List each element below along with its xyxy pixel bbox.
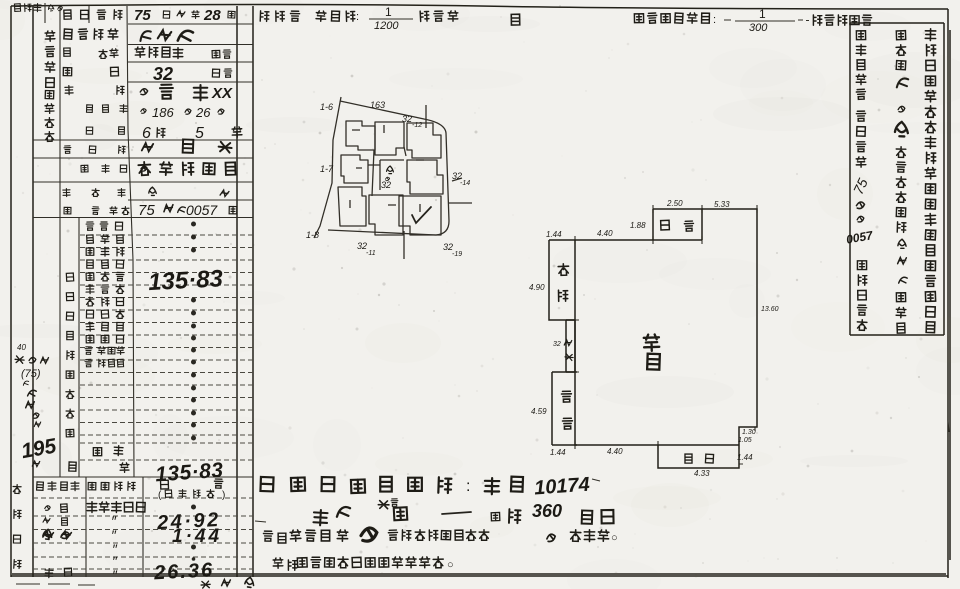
svg-text:-14: -14	[460, 180, 470, 187]
svg-text:10174: 10174	[533, 474, 590, 500]
svg-text:40: 40	[17, 343, 26, 352]
svg-text:1-6: 1-6	[320, 102, 333, 112]
svg-text:135·83: 135·83	[148, 265, 225, 296]
svg-text:1.44: 1.44	[546, 230, 562, 239]
svg-text:-11: -11	[366, 250, 376, 257]
svg-text:1-8: 1-8	[306, 230, 319, 240]
svg-text:1.05: 1.05	[738, 437, 752, 444]
svg-text:4.59: 4.59	[531, 407, 547, 416]
svg-text:2.50: 2.50	[666, 199, 683, 208]
svg-text:32: 32	[153, 64, 173, 84]
svg-text:): )	[222, 490, 225, 501]
svg-text:4.40: 4.40	[597, 229, 613, 238]
svg-text::: :	[713, 14, 716, 26]
svg-text:-19: -19	[452, 251, 462, 258]
svg-text:1-7: 1-7	[320, 164, 334, 174]
svg-text:4.40: 4.40	[607, 447, 623, 456]
svg-text:135·83: 135·83	[154, 459, 224, 487]
svg-text:75: 75	[138, 202, 155, 219]
svg-text::: :	[466, 478, 470, 495]
svg-text:1.30: 1.30	[742, 429, 756, 436]
svg-text:(: (	[158, 490, 162, 501]
svg-text:32: 32	[553, 341, 561, 348]
svg-text:5.33: 5.33	[714, 200, 730, 209]
svg-text::: :	[356, 11, 359, 23]
svg-text:1: 1	[759, 7, 766, 21]
svg-text:5: 5	[195, 125, 204, 142]
svg-text:4.90: 4.90	[529, 283, 545, 292]
svg-text:32: 32	[381, 180, 391, 190]
svg-text:○: ○	[611, 532, 618, 544]
svg-text:-12: -12	[412, 122, 422, 129]
svg-text:1.44: 1.44	[550, 448, 566, 457]
svg-text:26: 26	[195, 105, 211, 120]
svg-text:0057: 0057	[186, 202, 218, 218]
svg-text:○: ○	[447, 559, 454, 571]
svg-text:163: 163	[370, 100, 385, 110]
svg-text:32: 32	[402, 114, 412, 124]
svg-text:XX: XX	[211, 85, 233, 102]
svg-text:360: 360	[532, 501, 562, 521]
svg-text:4.33: 4.33	[694, 469, 710, 478]
svg-text:300: 300	[749, 22, 768, 34]
